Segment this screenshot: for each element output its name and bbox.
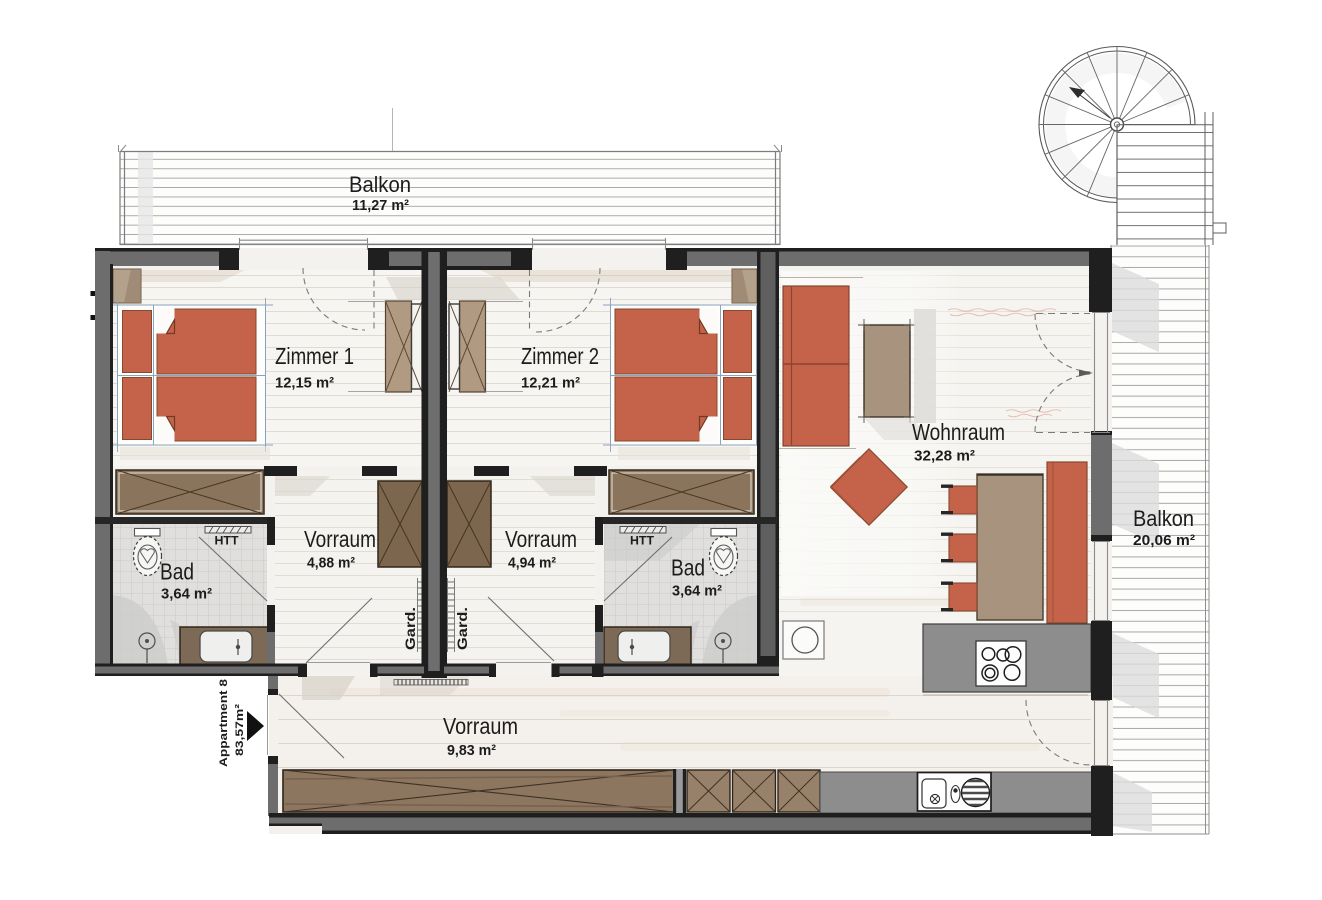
svg-text:Wohnraum: Wohnraum	[912, 419, 1005, 445]
svg-text:Balkon: Balkon	[349, 172, 411, 197]
svg-text:3,64 m²: 3,64 m²	[672, 583, 722, 600]
svg-text:4,88 m²: 4,88 m²	[307, 555, 355, 572]
svg-text:Gard.: Gard.	[455, 607, 470, 650]
svg-text:Bad: Bad	[671, 555, 705, 581]
svg-text:12,21 m²: 12,21 m²	[521, 375, 580, 392]
svg-text:12,15 m²: 12,15 m²	[275, 375, 334, 392]
svg-text:Vorraum: Vorraum	[443, 713, 518, 739]
svg-text:Vorraum: Vorraum	[304, 526, 376, 552]
svg-text:3,64 m²: 3,64 m²	[161, 586, 212, 603]
svg-text:Bad: Bad	[160, 559, 194, 585]
svg-text:11,27 m²: 11,27 m²	[352, 197, 409, 214]
svg-text:Zimmer 2: Zimmer 2	[521, 343, 599, 369]
svg-text:Gard.: Gard.	[403, 607, 418, 650]
svg-text:4,94 m²: 4,94 m²	[508, 555, 556, 572]
svg-text:83,57m²: 83,57m²	[234, 704, 246, 756]
svg-text:Appartment 8: Appartment 8	[218, 679, 230, 767]
svg-text:HTT: HTT	[630, 534, 655, 548]
svg-text:Zimmer 1: Zimmer 1	[275, 343, 354, 369]
svg-text:Balkon: Balkon	[1133, 506, 1194, 531]
svg-text:32,28 m²: 32,28 m²	[914, 448, 975, 465]
svg-text:20,06 m²: 20,06 m²	[1133, 532, 1195, 549]
svg-text:Vorraum: Vorraum	[505, 526, 577, 552]
svg-text:9,83 m²: 9,83 m²	[447, 742, 496, 759]
svg-text:HTT: HTT	[215, 534, 240, 548]
